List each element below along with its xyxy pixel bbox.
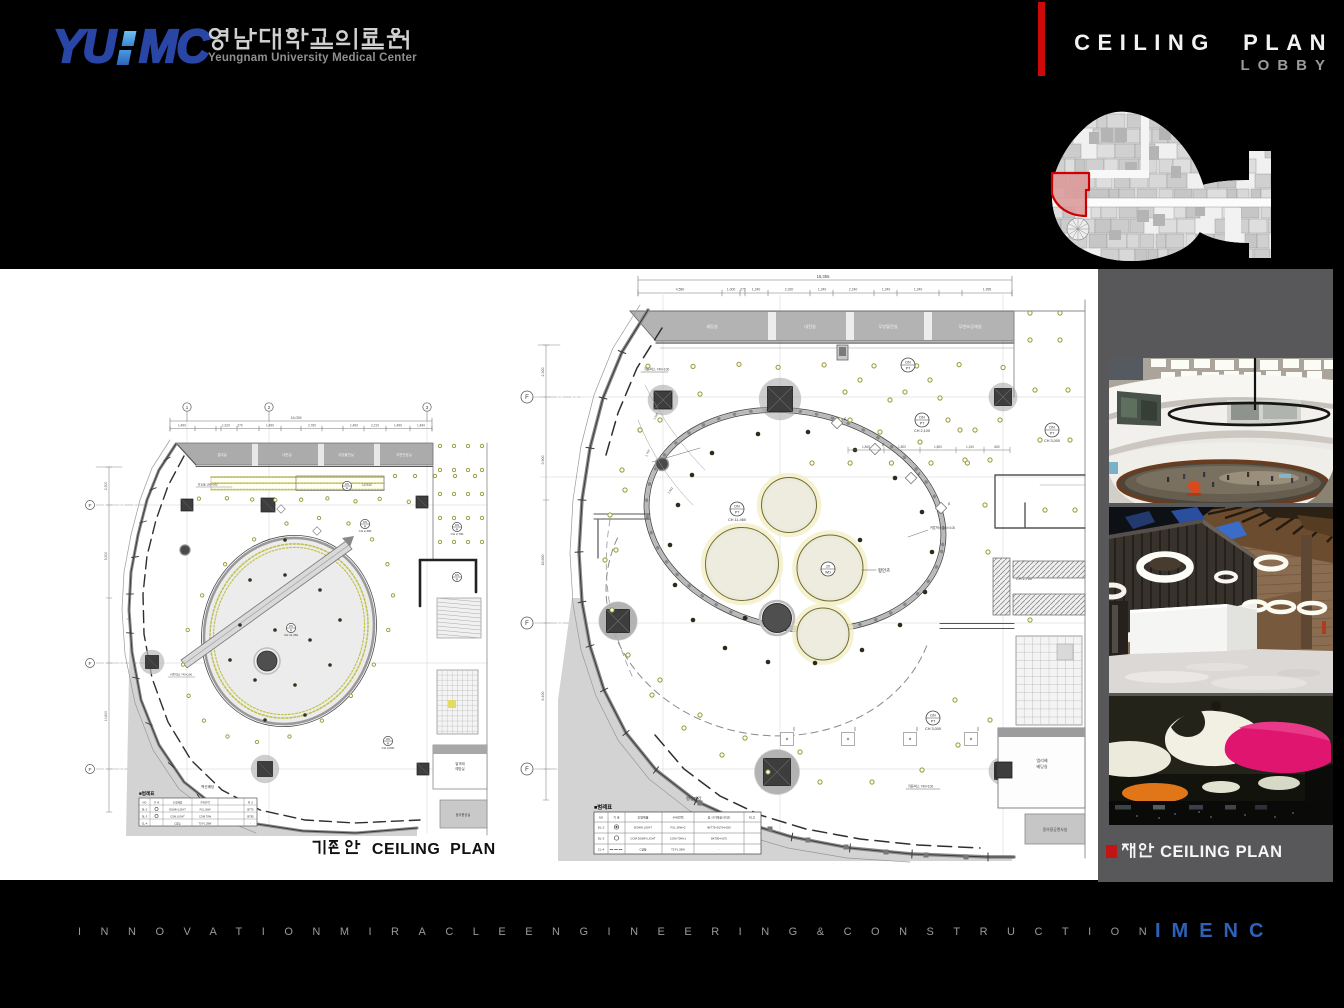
svg-text:2,760: 2,760 <box>308 424 316 428</box>
svg-text:1,240: 1,240 <box>966 445 974 449</box>
svg-text:1,845: 1,845 <box>862 445 870 449</box>
svg-text:WD: WD <box>825 571 831 575</box>
svg-text:CH 3,000: CH 3,000 <box>382 746 395 750</box>
svg-text:PI: PI <box>290 628 293 632</box>
svg-text:내전실: 내전실 <box>804 323 816 330</box>
svg-text:무방불전실: 무방불전실 <box>878 323 897 330</box>
svg-text:6,400: 6,400 <box>541 692 545 701</box>
svg-text:NO: NO <box>143 801 147 805</box>
svg-text:COM DOWN LIGHT: COM DOWN LIGHT <box>630 837 655 841</box>
svg-text:DL-2: DL-2 <box>142 808 148 812</box>
svg-text:16,355: 16,355 <box>817 274 830 279</box>
svg-text:DL-3: DL-3 <box>598 837 605 841</box>
svg-text:DN: DN <box>289 624 293 628</box>
svg-text:BKT85×H175: BKT85×H175 <box>711 837 727 841</box>
svg-text:커튼박스 740×100: 커튼박스 740×100 <box>170 673 192 677</box>
svg-text:CH 2,100: CH 2,100 <box>914 429 930 433</box>
svg-text:F: F <box>89 503 92 509</box>
svg-text:1,610: 1,610 <box>222 424 230 428</box>
svg-text:18,600: 18,600 <box>541 555 545 566</box>
svg-text:DOWN LIGHT: DOWN LIGHT <box>634 826 652 830</box>
svg-text:PT: PT <box>906 367 911 371</box>
svg-text:DL-3: DL-3 <box>142 815 148 819</box>
svg-text:비 고: 비 고 <box>248 801 254 805</box>
svg-text:1,800: 1,800 <box>898 445 906 449</box>
svg-text:■범례표: ■범례표 <box>594 803 612 811</box>
svg-text:DN: DN <box>905 361 911 365</box>
svg-text:2,320: 2,320 <box>785 288 794 292</box>
svg-text:1,240: 1,240 <box>752 288 761 292</box>
svg-text:내전실: 내전실 <box>282 452 291 457</box>
svg-text:CH 11,460: CH 11,460 <box>284 633 298 637</box>
svg-text:PT: PT <box>735 511 740 515</box>
svg-text:275: 275 <box>740 288 746 292</box>
svg-text:무변조공재실: 무변조공재실 <box>958 323 981 330</box>
svg-text:유도등 180×180: 유도등 180×180 <box>198 483 218 487</box>
svg-text:무변전공실: 무변전공실 <box>396 452 412 457</box>
svg-text:PI: PI <box>456 527 459 531</box>
svg-text:1,240: 1,240 <box>818 288 827 292</box>
svg-text:커튼박스 740×100: 커튼박스 740×100 <box>644 367 669 372</box>
svg-text:F: F <box>525 767 529 773</box>
svg-text:CH 3,000: CH 3,000 <box>925 727 941 731</box>
svg-text:BT75: BT75 <box>247 808 254 812</box>
svg-text:C형등: C형등 <box>639 848 647 852</box>
svg-text:1,490: 1,490 <box>350 424 358 428</box>
svg-text:T5 FL 28W: T5 FL 28W <box>199 822 212 826</box>
svg-text:공 사기애공사이드: 공 사기애공사이드 <box>708 815 731 820</box>
svg-text:T5 FL 28W: T5 FL 28W <box>671 848 685 852</box>
svg-text:DL-2: DL-2 <box>598 826 605 830</box>
svg-text:PT: PT <box>931 720 936 724</box>
svg-text:COM 70W×1: COM 70W×1 <box>670 837 687 841</box>
svg-text:1,240: 1,240 <box>914 288 923 292</box>
svg-text:1,800: 1,800 <box>934 445 942 449</box>
svg-text:기 호: 기 호 <box>154 801 160 805</box>
svg-text:PI: PI <box>364 524 367 528</box>
svg-text:1,490: 1,490 <box>417 424 425 428</box>
svg-text:COM LIGHT: COM LIGHT <box>170 815 185 819</box>
svg-text:1,750: 1,750 <box>644 449 651 458</box>
svg-text:무방불전실: 무방불전실 <box>338 452 354 457</box>
svg-text:2,300: 2,300 <box>541 368 545 377</box>
svg-text:DN: DN <box>919 416 925 420</box>
svg-text:FUL 26W×2: FUL 26W×2 <box>671 826 686 830</box>
svg-text:엠리베: 엠리베 <box>1036 757 1047 763</box>
svg-text:DOWN LIGHT: DOWN LIGHT <box>169 808 186 812</box>
svg-text:조명제품: 조명제품 <box>637 815 648 820</box>
svg-text:1,490: 1,490 <box>266 424 274 428</box>
svg-text:FUL 26W: FUL 26W <box>200 808 211 812</box>
svg-text:DN: DN <box>455 523 459 527</box>
svg-text:DN: DN <box>345 482 349 486</box>
svg-text:20: 20 <box>826 565 830 569</box>
svg-text:2,240: 2,240 <box>849 288 858 292</box>
svg-text:1,240: 1,240 <box>882 288 891 292</box>
svg-text:14,940: 14,940 <box>362 483 372 487</box>
svg-text:CH 3,000: CH 3,000 <box>1044 439 1060 443</box>
svg-text:DN: DN <box>1049 426 1055 430</box>
svg-text:DN: DN <box>930 714 936 718</box>
svg-text:BKT75×D175×H200: BKT75×D175×H200 <box>707 826 731 830</box>
svg-text:-: - <box>250 823 251 826</box>
svg-text:F: F <box>89 767 92 773</box>
svg-text:접대실: 접대실 <box>217 452 226 457</box>
svg-text:평안츠: 평안츠 <box>878 567 890 573</box>
svg-text:270: 270 <box>237 424 243 428</box>
svg-text:동아용공랜사실: 동아용공랜사실 <box>1043 827 1068 832</box>
svg-text:-: - <box>719 849 720 852</box>
svg-text:2,210: 2,210 <box>371 424 379 428</box>
svg-text:10,600: 10,600 <box>104 711 108 721</box>
svg-text:PI: PI <box>456 577 459 581</box>
svg-text:NO: NO <box>599 816 604 820</box>
svg-text:동아용공실: 동아용공실 <box>456 812 471 817</box>
svg-text:F: F <box>89 661 92 667</box>
svg-text:PI: PI <box>387 741 390 745</box>
svg-text:PT: PT <box>1050 432 1055 436</box>
svg-text:DN: DN <box>455 573 459 577</box>
svg-text:♯: ♯ <box>948 501 950 506</box>
svg-text:F: F <box>525 621 529 627</box>
svg-text:베딩실: 베딩실 <box>1036 763 1047 769</box>
svg-text:커튼박스 740×100: 커튼박스 740×100 <box>908 784 933 789</box>
svg-text:BT85: BT85 <box>247 815 254 819</box>
svg-text:♯: ♯ <box>918 471 920 476</box>
svg-text:DN: DN <box>363 520 367 524</box>
svg-text:5,500: 5,500 <box>104 552 108 561</box>
svg-text:세탕실: 세탕실 <box>706 323 718 330</box>
svg-text:16,055: 16,055 <box>291 416 302 420</box>
svg-text:1,490: 1,490 <box>178 424 186 428</box>
svg-text:DN: DN <box>386 737 390 741</box>
svg-text:조명제품: 조명제품 <box>173 801 183 805</box>
svg-text:CL-4: CL-4 <box>142 822 148 826</box>
svg-text:2,300: 2,300 <box>104 482 108 491</box>
svg-text:1,000: 1,000 <box>727 288 736 292</box>
svg-text:팽성패강: 팽성패강 <box>686 795 702 802</box>
svg-text:CL-4: CL-4 <box>598 848 605 852</box>
svg-text:커튼박스 740×100: 커튼박스 740×100 <box>930 525 955 530</box>
svg-text:예방실: 예방실 <box>455 766 464 771</box>
svg-text:비 고: 비 고 <box>749 815 756 820</box>
svg-text:CH 2,700: CH 2,700 <box>451 532 464 536</box>
svg-text:수비전력: 수비전력 <box>200 801 210 805</box>
svg-text:1,931: 1,931 <box>667 486 675 495</box>
svg-text:CH 11,460: CH 11,460 <box>728 518 746 522</box>
svg-text:1,995: 1,995 <box>983 288 992 292</box>
svg-text:기 호: 기 호 <box>613 815 620 820</box>
svg-text:♯: ♯ <box>882 442 884 447</box>
svg-text:PT: PT <box>920 422 925 426</box>
svg-text:DN: DN <box>734 505 740 509</box>
svg-text:C형등: C형등 <box>174 822 181 826</box>
svg-text:백선쾌당: 백선쾌당 <box>201 784 215 789</box>
svg-text:■범례표: ■범례표 <box>139 790 155 797</box>
svg-text:1,490: 1,490 <box>394 424 402 428</box>
svg-text:수비전력: 수비전력 <box>672 815 683 820</box>
svg-text:발색제: 발색제 <box>455 761 464 766</box>
svg-text:660: 660 <box>994 445 1000 449</box>
svg-text:3,900: 3,900 <box>541 456 545 465</box>
svg-text:♯: ♯ <box>844 416 846 421</box>
svg-text:PI: PI <box>346 486 349 490</box>
svg-text:COM 70W: COM 70W <box>199 815 212 819</box>
svg-text:CH 2,400: CH 2,400 <box>359 529 372 533</box>
svg-text:F: F <box>525 395 529 401</box>
svg-text:4,580: 4,580 <box>676 288 685 292</box>
